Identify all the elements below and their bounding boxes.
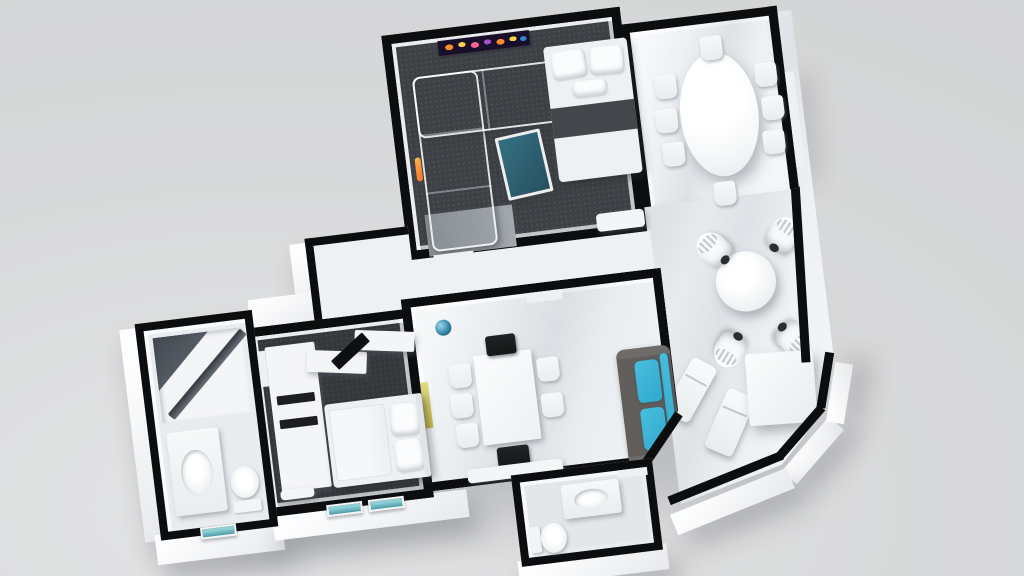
pillow xyxy=(392,437,425,473)
washbasin-vanity xyxy=(560,479,622,520)
floor-plan-canvas xyxy=(0,0,1024,576)
dining-chair xyxy=(761,95,786,122)
pillow xyxy=(389,402,420,436)
shelf-slot xyxy=(279,416,318,430)
pillow xyxy=(549,48,587,81)
wall-artwork xyxy=(437,30,530,56)
dining-chair xyxy=(654,108,679,135)
dining-chair xyxy=(753,61,778,88)
bench xyxy=(596,208,646,232)
dining-chair xyxy=(699,35,724,62)
duvet xyxy=(329,403,393,481)
white-chair xyxy=(450,393,475,420)
shelf-slot xyxy=(276,392,315,406)
corner-sofa-seat xyxy=(412,60,562,139)
room-small-bathroom xyxy=(511,458,663,567)
dining-chair xyxy=(653,74,678,101)
cyan-seat-cushion xyxy=(634,359,663,404)
room-dining xyxy=(620,6,799,208)
toilet-tank xyxy=(233,498,262,513)
lounge-bed xyxy=(543,37,643,182)
white-chair xyxy=(455,422,480,449)
door-opening xyxy=(526,289,563,303)
blue-ornament xyxy=(434,319,452,337)
white-chair xyxy=(448,363,473,390)
washbasin xyxy=(178,448,215,498)
dining-table xyxy=(473,349,542,445)
shower-tray xyxy=(152,327,252,423)
room-lounge xyxy=(381,7,647,261)
oval-dining-table xyxy=(673,48,766,181)
door-opening xyxy=(617,467,648,479)
pillow xyxy=(588,44,624,75)
washbasin-vanity xyxy=(166,427,228,517)
toilet-bowl xyxy=(229,464,261,499)
room-hallway xyxy=(304,226,417,320)
small-cushion xyxy=(571,78,607,98)
dining-chair xyxy=(662,141,687,168)
white-chair xyxy=(540,392,565,419)
apartment-render xyxy=(0,0,1024,576)
dining-chair xyxy=(762,129,787,156)
washbasin xyxy=(573,487,609,511)
coffee-table xyxy=(494,128,553,201)
toilet-bowl xyxy=(539,521,568,554)
white-chair xyxy=(536,356,561,383)
bedroom-bed xyxy=(324,393,432,488)
dining-chair xyxy=(713,180,738,207)
black-chair xyxy=(485,333,517,357)
dark-throw-blanket xyxy=(550,99,637,139)
